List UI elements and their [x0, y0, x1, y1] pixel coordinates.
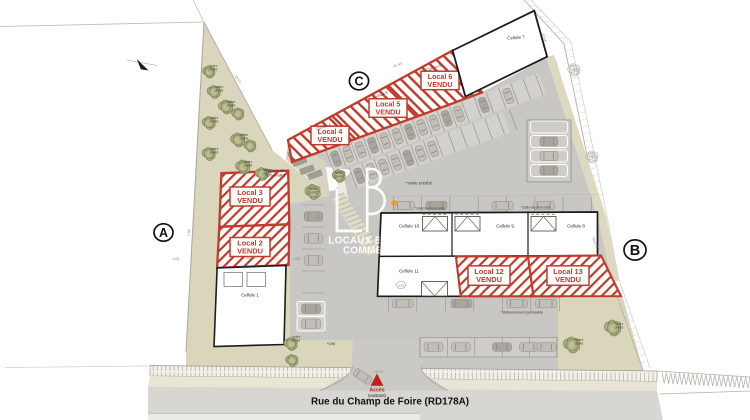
svg-text:Cellule 8: Cellule 8 — [567, 224, 585, 229]
svg-text:- 49.00 -: - 49.00 - — [373, 370, 386, 374]
svg-text:12.05: 12.05 — [398, 283, 405, 287]
svg-text:planté: planté — [215, 89, 224, 93]
svg-text:VENDU: VENDU — [237, 247, 263, 256]
svg-text:VENDU: VENDU — [555, 275, 581, 284]
svg-text:7.98: 7.98 — [187, 229, 192, 236]
svg-text:B: B — [630, 243, 640, 259]
svg-text:convivialité: convivialité — [265, 173, 285, 178]
svg-text:Cellule 11: Cellule 11 — [399, 269, 420, 274]
svg-text:61.33: 61.33 — [247, 256, 256, 260]
svg-text:planté: planté — [575, 342, 584, 346]
svg-text:VENDU: VENDU — [476, 275, 502, 284]
svg-text:planté: planté — [210, 120, 219, 124]
svg-text:*voirie enrobé: *voirie enrobé — [406, 181, 433, 186]
svg-text:planté: planté — [227, 104, 236, 108]
svg-text:planté: planté — [244, 164, 253, 168]
svg-text:Rue du Champ de Foire (RD178A): Rue du Champ de Foire (RD178A) — [311, 397, 469, 408]
svg-text:planté: planté — [209, 68, 218, 72]
svg-text:4.86: 4.86 — [294, 257, 301, 261]
svg-text:VENDU: VENDU — [375, 108, 400, 117]
svg-text:planté: planté — [335, 175, 344, 179]
svg-text:planté: planté — [292, 339, 301, 343]
svg-text:VENDU: VENDU — [427, 80, 452, 89]
svg-text:*stationnement mixte: *stationnement mixte — [415, 207, 445, 211]
svg-text:VENDU: VENDU — [317, 135, 342, 144]
svg-text:Cellule 1: Cellule 1 — [241, 293, 259, 298]
svg-text:VENDU: VENDU — [237, 196, 263, 205]
svg-text:4.00: 4.00 — [173, 257, 180, 261]
svg-text:*stationnement perméable: *stationnement perméable — [501, 311, 543, 315]
svg-text:A: A — [159, 226, 168, 240]
svg-text:planté: planté — [240, 137, 249, 141]
svg-text:*stationnement mixte: *stationnement mixte — [521, 206, 551, 210]
svg-text:Cellule 10: Cellule 10 — [399, 224, 420, 229]
svg-text:*OM: *OM — [327, 341, 335, 346]
svg-text:Cellule 9: Cellule 9 — [496, 224, 514, 229]
svg-text:planté: planté — [615, 326, 624, 330]
svg-text:C: C — [354, 75, 363, 89]
svg-text:planté: planté — [210, 151, 219, 155]
svg-text:planté: planté — [309, 191, 318, 195]
